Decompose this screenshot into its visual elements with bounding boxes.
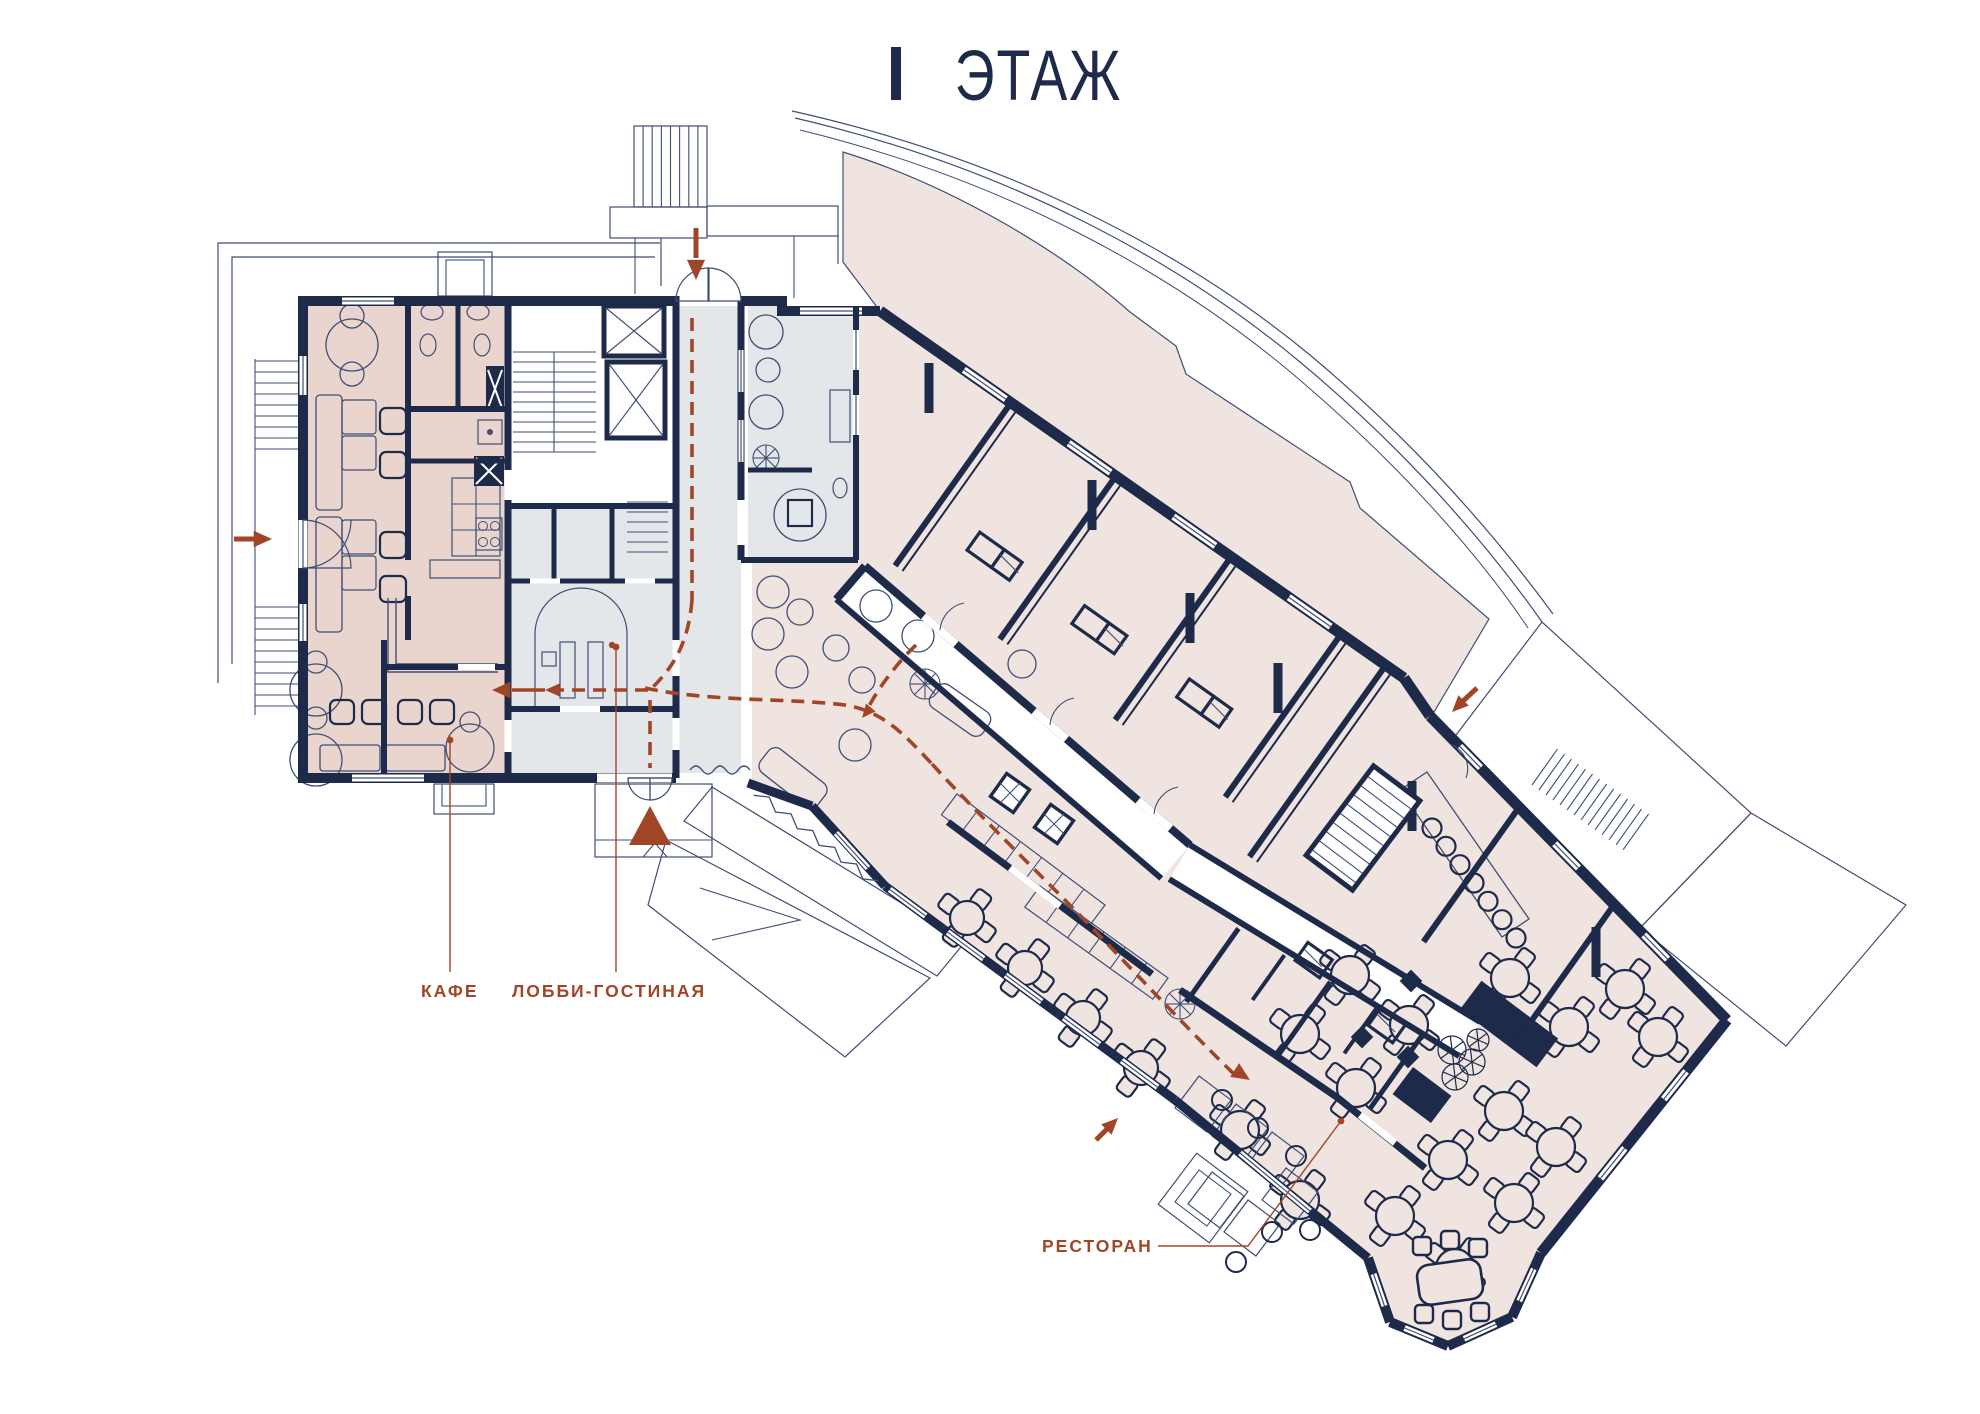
svg-text:РЕСТОРАН: РЕСТОРАН xyxy=(1042,1236,1153,1256)
svg-text:ЛОББИ-ГОСТИНАЯ: ЛОББИ-ГОСТИНАЯ xyxy=(512,981,706,1001)
svg-text:КАФЕ: КАФЕ xyxy=(421,981,479,1001)
svg-text:ЭТАЖ: ЭТАЖ xyxy=(955,36,1123,115)
